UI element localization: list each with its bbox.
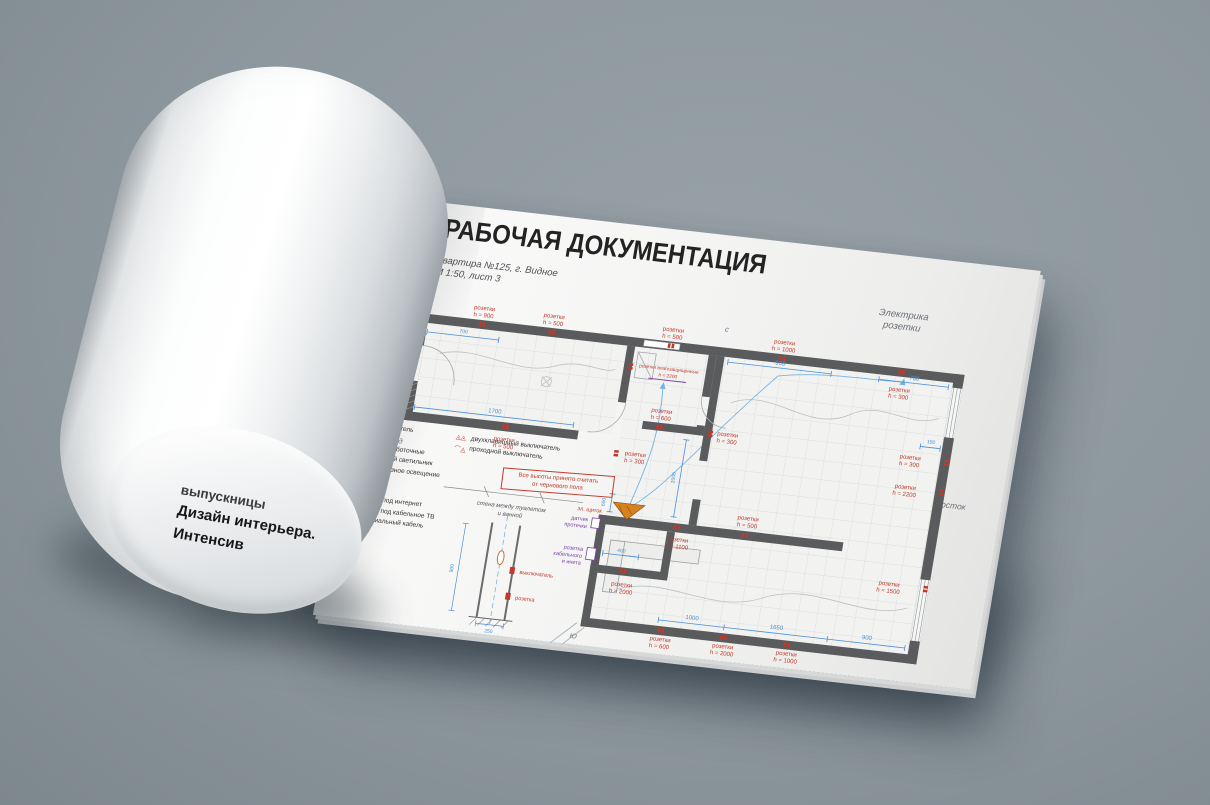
svg-text:700: 700 [459,329,468,336]
svg-text:и ванной: и ванной [497,510,523,520]
svg-text:900: 900 [775,361,787,368]
svg-text:600: 600 [600,497,607,506]
double-switch-icon: ◬◬ [455,433,471,443]
svg-text:250: 250 [484,628,493,635]
svg-text:h = 500: h = 500 [662,334,684,342]
compass-north: с [724,325,729,334]
svg-text:700: 700 [909,376,921,383]
svg-text:150: 150 [926,439,935,446]
svg-text:400: 400 [617,548,626,555]
svg-text:протечки: протечки [564,522,587,530]
svg-text:розетка: розетка [515,596,536,604]
svg-text:h = 600: h = 600 [648,643,670,651]
tv-internet-outlet: розетка кабельного и инета [552,544,597,568]
svg-text:900: 900 [449,564,456,573]
svg-text:h = 900: h = 900 [473,312,495,320]
leak-sensor: датчик протечки [564,515,601,532]
svg-text:900: 900 [861,635,873,642]
svg-text:h = 500: h = 500 [542,320,564,328]
compass-south: Ю [569,633,577,641]
panel-label: эл. щиток [577,506,603,515]
svg-text:и инета: и инета [561,559,582,567]
svg-text:выключатель: выключатель [519,570,554,580]
